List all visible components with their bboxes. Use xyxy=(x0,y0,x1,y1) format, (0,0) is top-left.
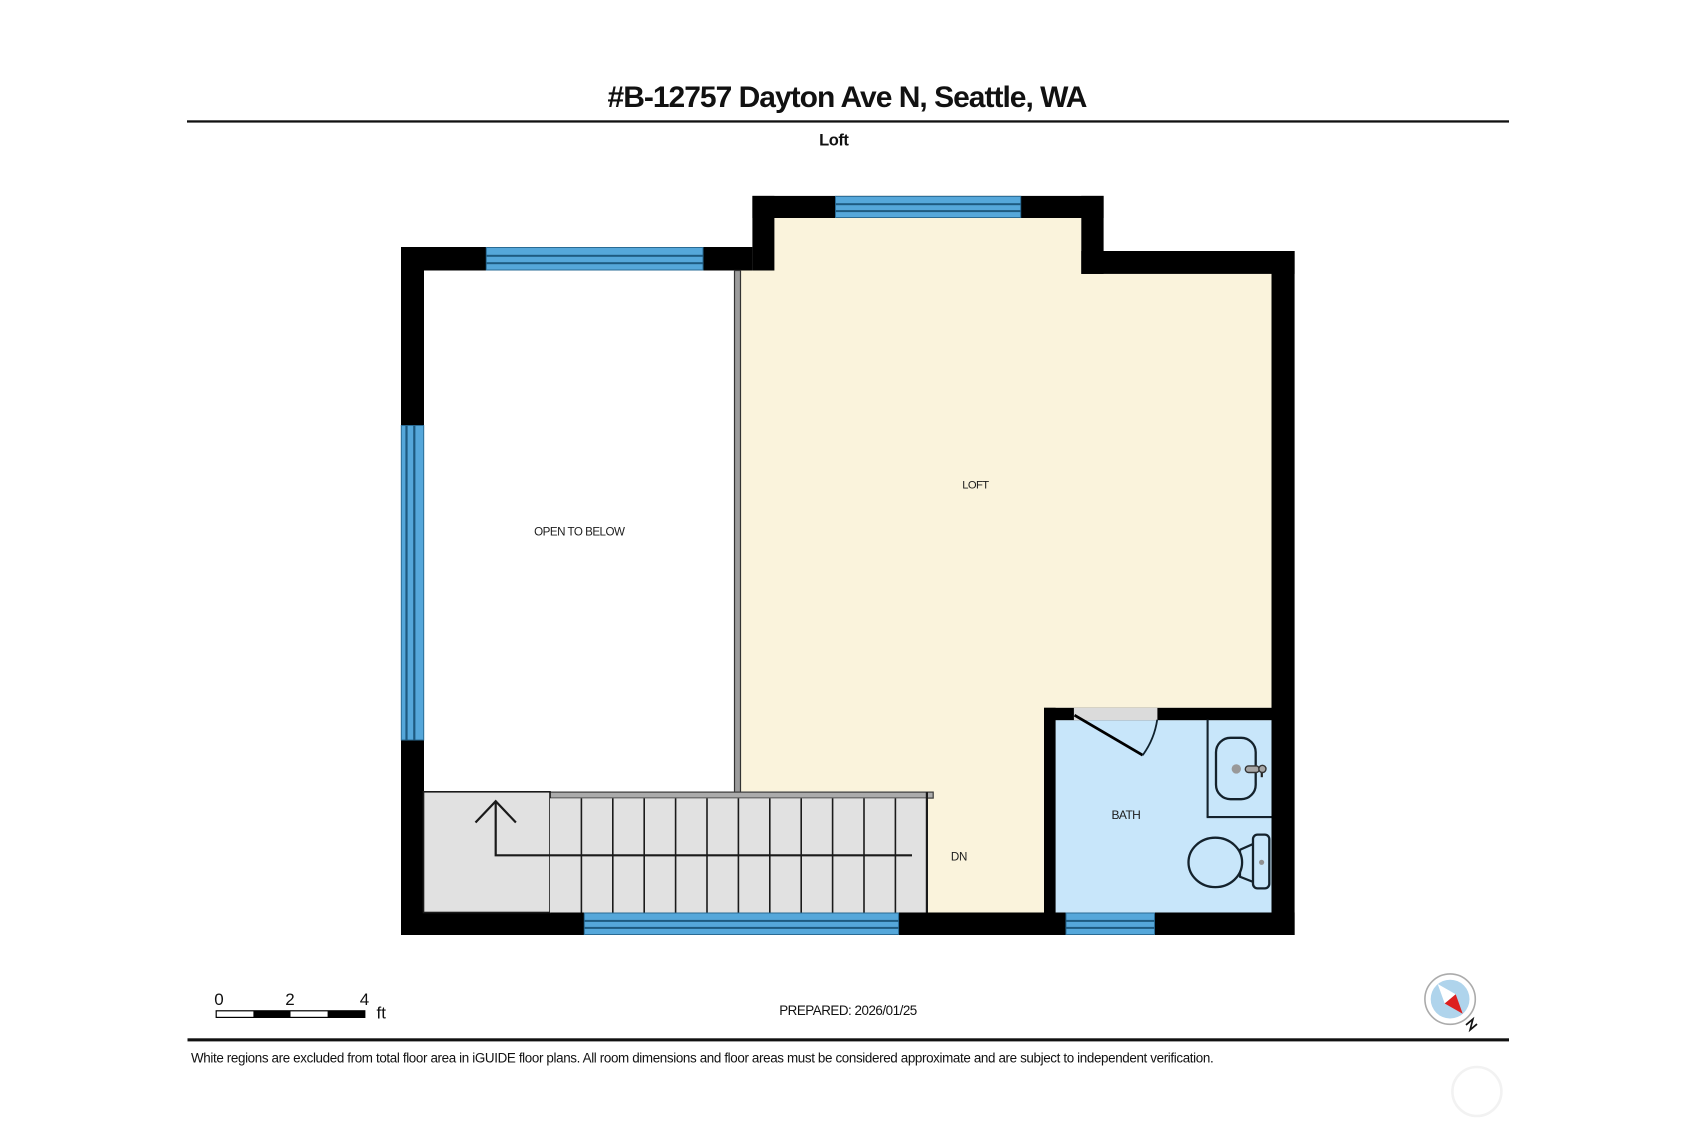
svg-text:Loft: Loft xyxy=(819,132,849,150)
svg-text:0: 0 xyxy=(214,990,223,1009)
svg-text:4: 4 xyxy=(360,990,369,1009)
svg-text:ft: ft xyxy=(377,1004,387,1023)
svg-text:PREPARED: 2026/01/25: PREPARED: 2026/01/25 xyxy=(779,1003,917,1018)
svg-text:#B-12757 Dayton Ave N, Seattle: #B-12757 Dayton Ave N, Seattle, WA xyxy=(608,81,1087,114)
svg-text:White regions are excluded fro: White regions are excluded from total fl… xyxy=(191,1050,1213,1065)
svg-text:BATH: BATH xyxy=(1112,808,1141,822)
svg-text:2: 2 xyxy=(285,990,294,1009)
svg-text:LOFT: LOFT xyxy=(962,479,989,491)
svg-text:OPEN TO BELOW: OPEN TO BELOW xyxy=(534,526,625,539)
svg-text:DN: DN xyxy=(951,850,967,863)
